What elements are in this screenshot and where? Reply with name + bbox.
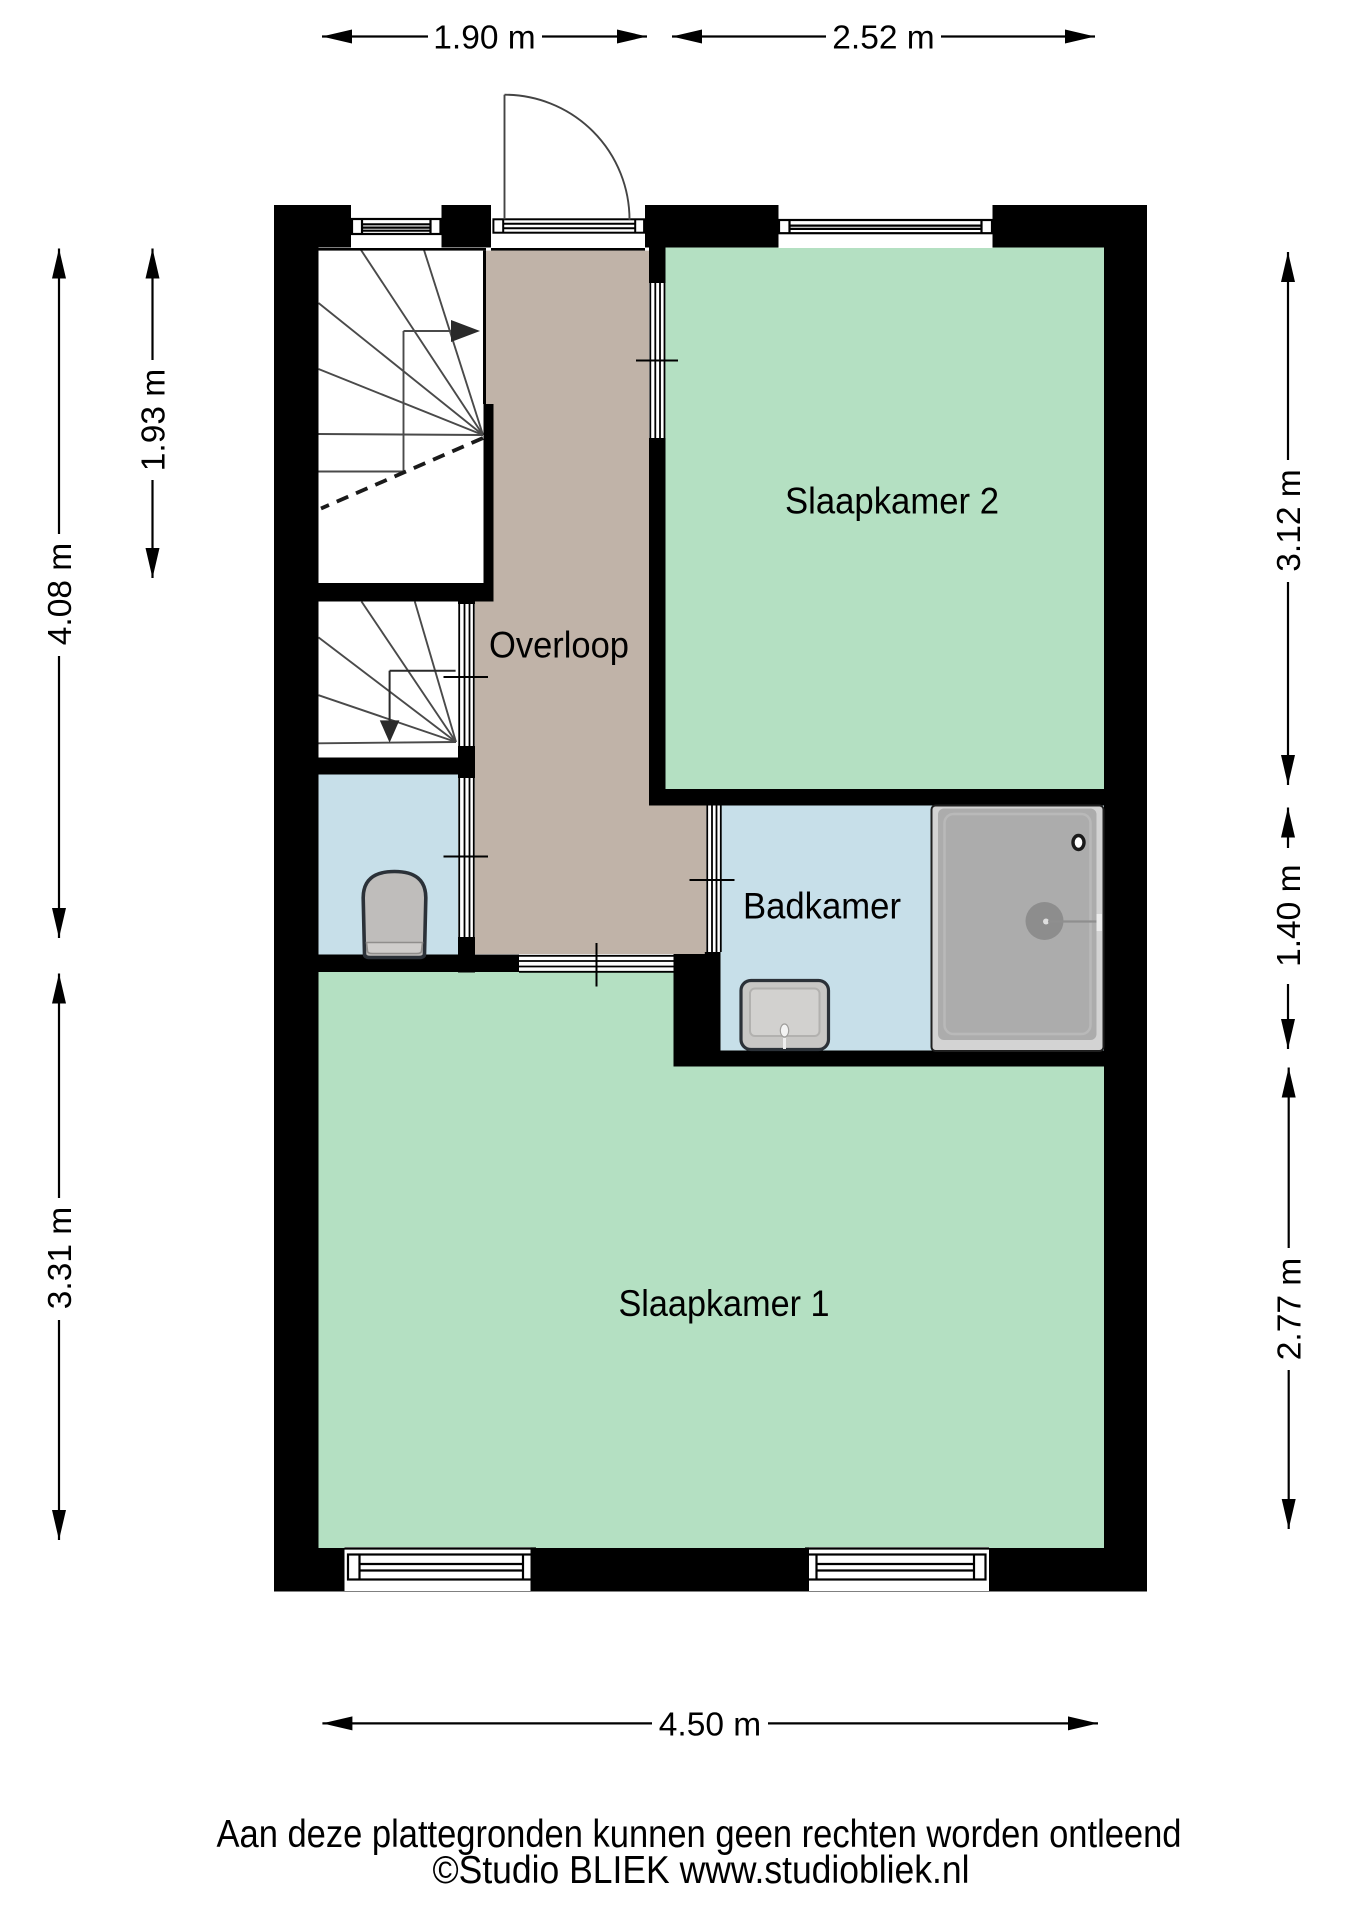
svg-text:Slaapkamer 2: Slaapkamer 2 [785, 481, 999, 522]
svg-text:Overloop: Overloop [489, 625, 629, 666]
svg-text:2.52 m: 2.52 m [832, 20, 934, 57]
svg-text:1.90 m: 1.90 m [433, 20, 535, 57]
svg-text:2.77 m: 2.77 m [1272, 1258, 1309, 1360]
svg-text:3.12 m: 3.12 m [1271, 469, 1308, 571]
svg-text:©Studio BLIEK www.studiobliek.: ©Studio BLIEK www.studiobliek.nl [433, 1849, 970, 1892]
svg-text:1.93 m: 1.93 m [136, 369, 173, 471]
svg-text:1.40 m: 1.40 m [1271, 864, 1308, 966]
svg-text:Badkamer: Badkamer [743, 886, 901, 927]
svg-text:Slaapkamer 1: Slaapkamer 1 [619, 1283, 830, 1324]
svg-text:3.31 m: 3.31 m [42, 1207, 79, 1309]
svg-text:4.50 m: 4.50 m [659, 1706, 761, 1743]
svg-text:4.08 m: 4.08 m [42, 543, 79, 645]
